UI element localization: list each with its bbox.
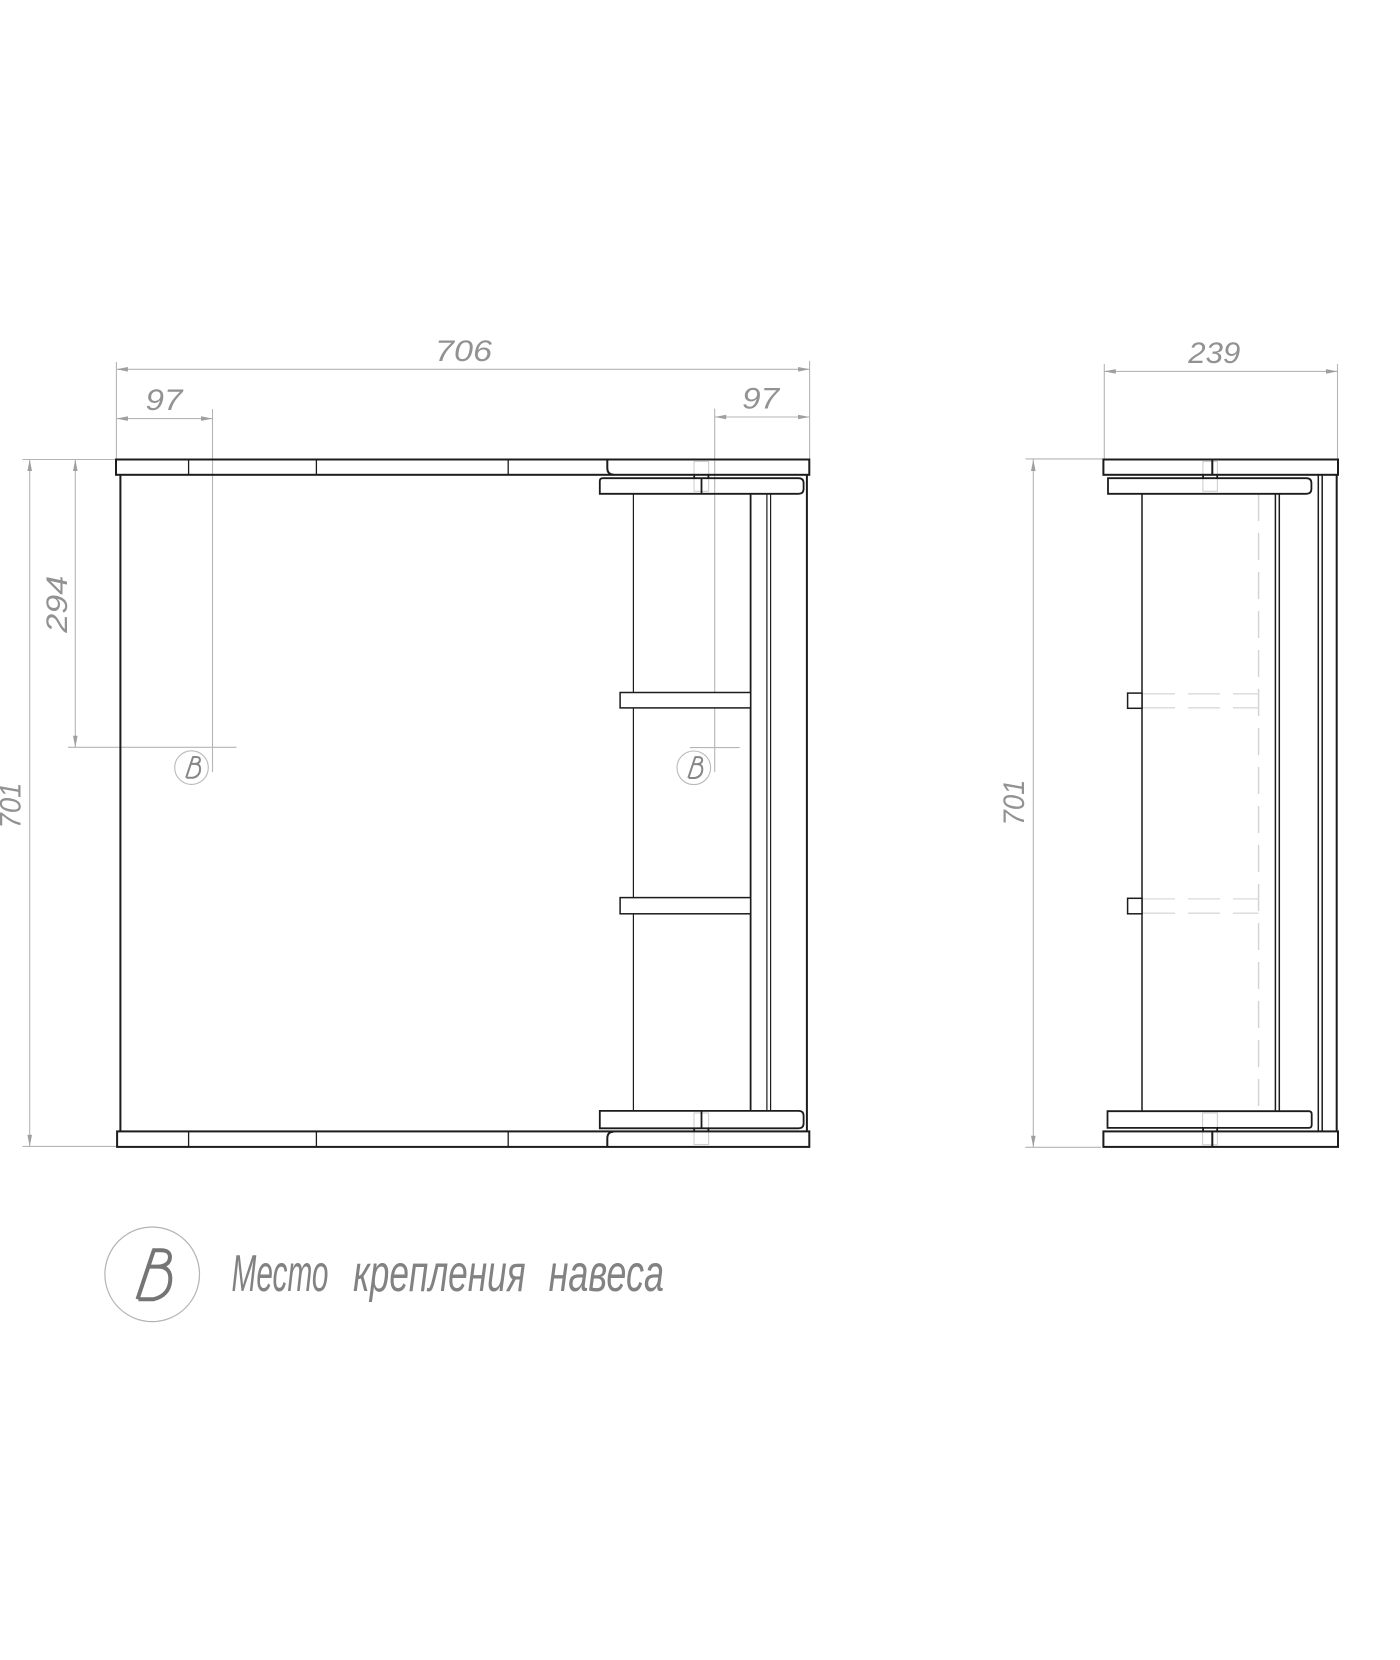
svg-text:239: 239: [1187, 337, 1240, 370]
svg-text:Место: Место: [232, 1245, 329, 1303]
svg-text:701: 701: [0, 783, 27, 829]
svg-text:701: 701: [998, 780, 1031, 826]
svg-text:навеса: навеса: [549, 1245, 664, 1303]
svg-text:97: 97: [742, 383, 780, 416]
svg-text:97: 97: [146, 384, 184, 417]
svg-text:706: 706: [435, 335, 492, 368]
svg-text:крепления: крепления: [353, 1245, 525, 1303]
svg-text:294: 294: [41, 576, 74, 634]
